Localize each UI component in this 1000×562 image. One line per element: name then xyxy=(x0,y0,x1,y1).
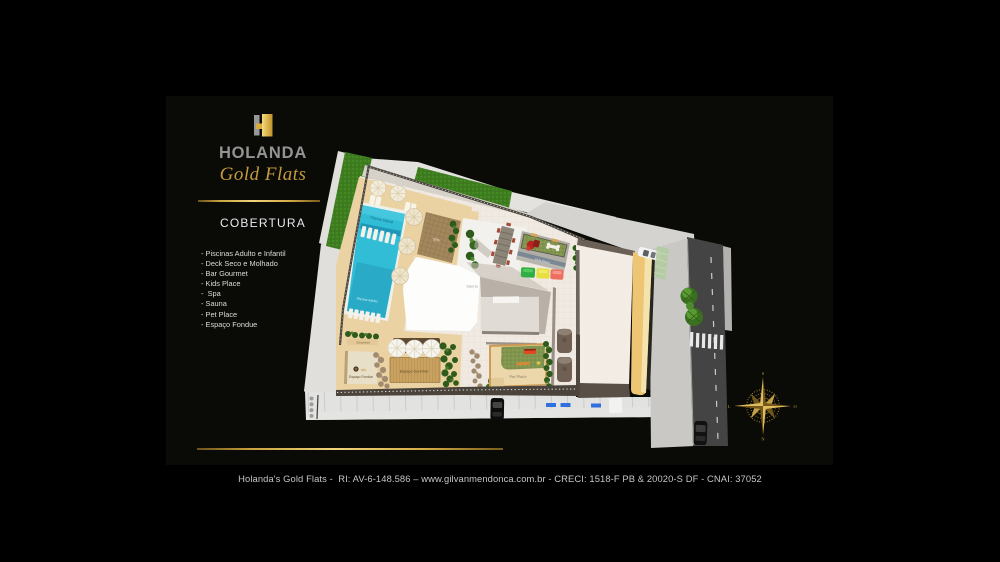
svg-text:L: L xyxy=(728,404,731,409)
svg-text:S: S xyxy=(762,371,765,376)
svg-text:O: O xyxy=(794,404,797,409)
svg-text:Sauna: Sauna xyxy=(466,283,478,288)
svg-text:Chuveiros: Chuveiros xyxy=(356,341,370,345)
svg-text:N: N xyxy=(761,437,765,442)
svg-text:Espaço Fondue: Espaço Fondue xyxy=(349,375,373,379)
svg-text:Pet Place: Pet Place xyxy=(509,374,527,379)
svg-text:Espaço Gourmet: Espaço Gourmet xyxy=(400,370,429,374)
